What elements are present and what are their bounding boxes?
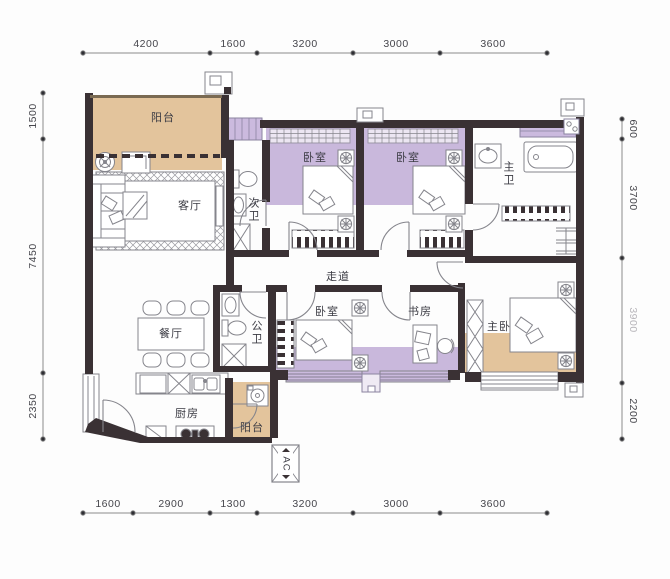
door-bedroom-c: [287, 292, 315, 320]
flue-box-circles: [564, 119, 579, 134]
wardrobe: [467, 300, 483, 374]
towel-hooks: [556, 228, 576, 254]
tv: [216, 186, 223, 226]
fridge: [140, 375, 166, 393]
window-bedroom-c-bay: [286, 371, 362, 382]
window-master-bay: [481, 372, 558, 390]
public-bath-fixtures: [222, 294, 246, 368]
dining-chair: [167, 301, 185, 315]
floorplan-page: 阳台 客厅 次卫 卧室 卧室 主卫 走道 餐厅 公卫 卧室 书房 主卧 厨房 阳…: [0, 0, 670, 579]
bath-cabinet: [502, 206, 570, 221]
dining-chair: [143, 301, 161, 315]
dining-chair: [143, 353, 161, 367]
desk-chair: [438, 339, 453, 354]
door-master-bath: [473, 204, 499, 230]
window-bedroom-a: [270, 129, 350, 143]
wardrobe: [277, 320, 294, 368]
wardrobe: [292, 230, 354, 248]
ac-platform: [272, 445, 299, 482]
door-public-bath: [240, 292, 266, 318]
bedroom-b-furniture: [413, 166, 465, 248]
laundry-balcony: [247, 385, 268, 406]
door-bedroom-b: [381, 222, 409, 250]
bathtub: [524, 142, 577, 172]
door-study: [382, 292, 410, 320]
entry-column: [205, 72, 232, 94]
dining-chair: [191, 301, 209, 315]
sofa: [92, 175, 125, 247]
master-bath-fixtures: [475, 142, 577, 254]
dining-chair: [191, 353, 209, 367]
kitchen-fixtures: [136, 373, 228, 442]
wardrobe: [420, 230, 464, 248]
dining-furniture: [138, 301, 209, 367]
kitchen-sink: [192, 375, 220, 393]
floorplan-drawing: [0, 0, 670, 579]
dining-chair: [167, 353, 185, 367]
dining-table: [138, 318, 204, 350]
flue-bottom-right: [565, 383, 583, 397]
bay-column-bottom: [362, 374, 380, 392]
window-study-bay: [380, 371, 450, 382]
toilet: [222, 320, 228, 336]
window-bedroom-b: [368, 129, 458, 143]
entry-cabinet: [228, 118, 262, 140]
